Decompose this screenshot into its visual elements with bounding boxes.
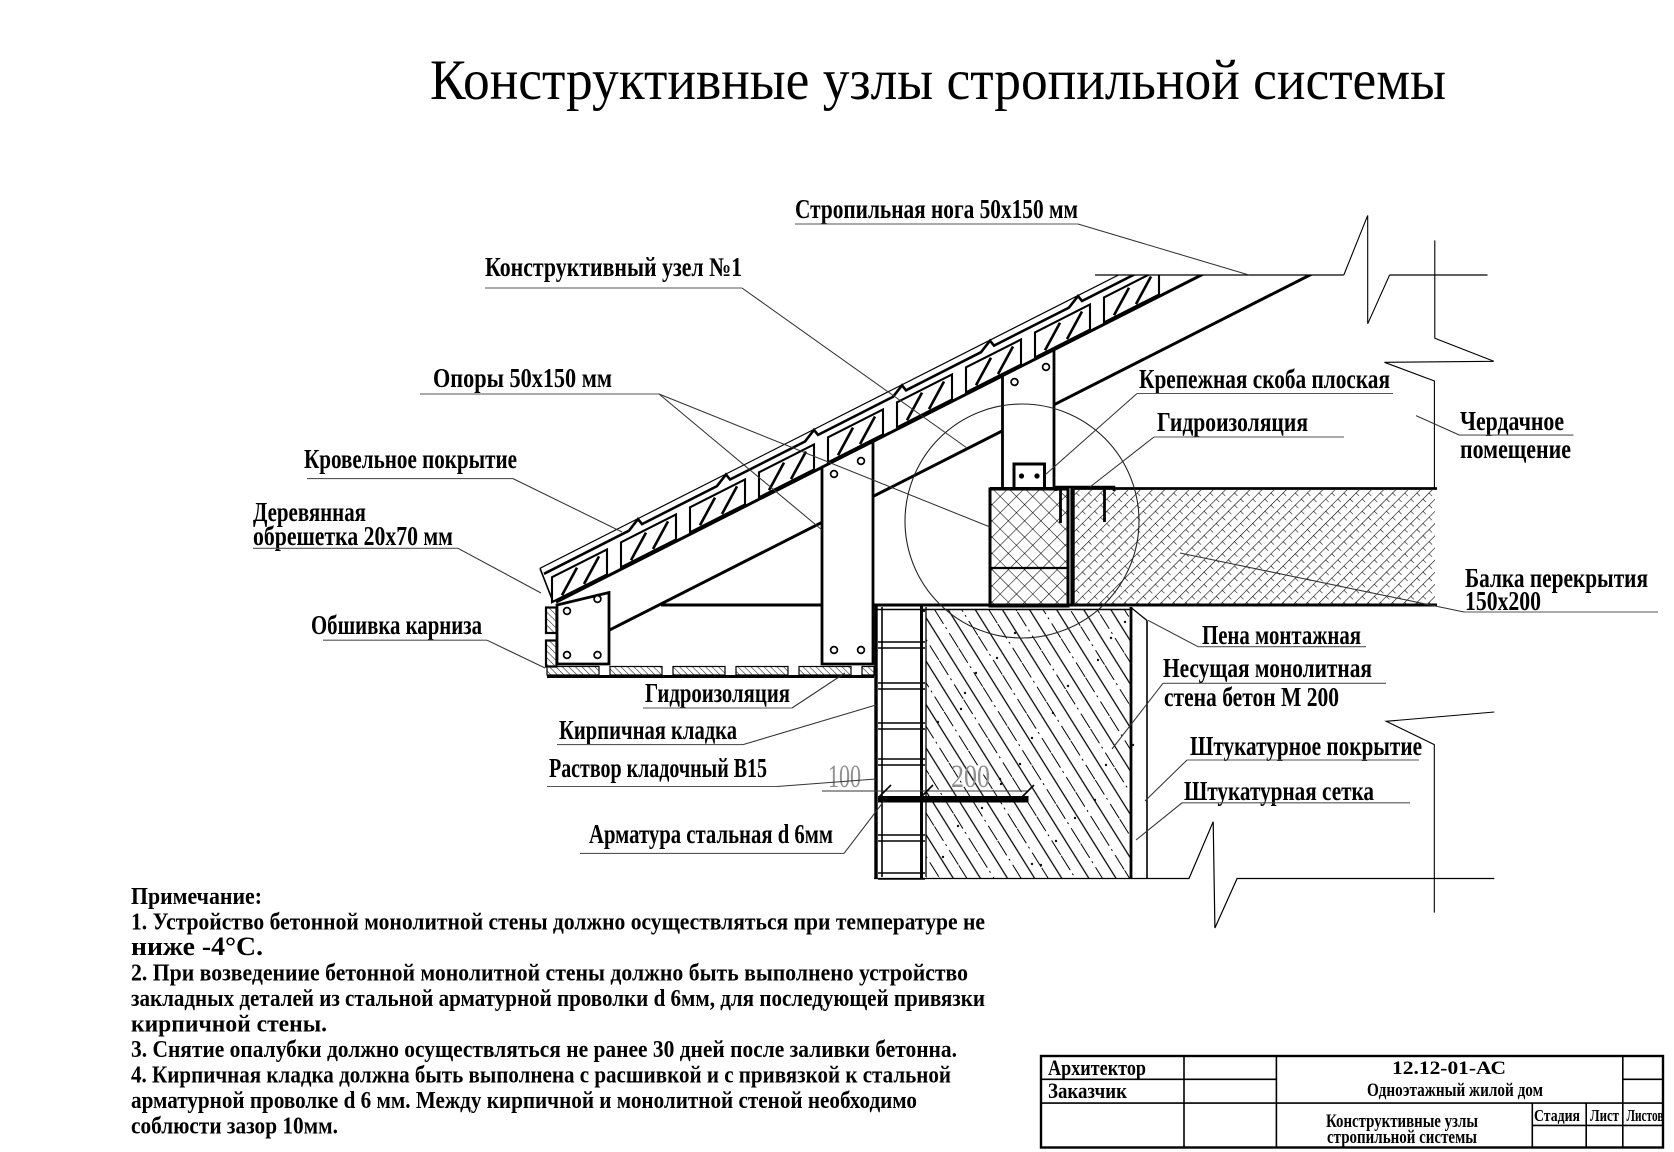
- svg-text:Обшивка карниза: Обшивка карниза: [311, 610, 482, 640]
- svg-text:Арматура стальная d 6мм: Арматура стальная d 6мм: [589, 819, 833, 849]
- svg-text:Листов: Листов: [1627, 1106, 1664, 1125]
- svg-text:100: 100: [828, 759, 861, 795]
- svg-text:Конструктивный узел №1: Конструктивный узел №1: [485, 252, 742, 282]
- svg-text:обрешетка 20х70 мм: обрешетка 20х70 мм: [253, 521, 453, 551]
- svg-text:Раствор кладочный В15: Раствор кладочный В15: [549, 753, 767, 783]
- svg-text:Несущая монолитная: Несущая монолитная: [1163, 653, 1372, 683]
- svg-text:Кирпичная кладка: Кирпичная кладка: [559, 715, 737, 745]
- svg-text:12.12-01-АС: 12.12-01-АС: [1392, 1058, 1506, 1079]
- svg-text:Гидроизоляция: Гидроизоляция: [645, 678, 790, 708]
- svg-text:стена бетон М 200: стена бетон М 200: [1164, 682, 1339, 712]
- svg-text:Архитектор: Архитектор: [1048, 1055, 1146, 1080]
- svg-text:Штукатурное покрытие: Штукатурное покрытие: [1190, 731, 1422, 761]
- svg-text:Гидроизоляция: Гидроизоляция: [1157, 407, 1308, 437]
- svg-text:Чердачное: Чердачное: [1460, 406, 1564, 436]
- svg-text:Кровельное покрытие: Кровельное покрытие: [304, 444, 517, 474]
- svg-text:Крепежная скоба плоская: Крепежная скоба плоская: [1139, 364, 1390, 394]
- svg-text:200: 200: [951, 759, 990, 795]
- svg-text:4. Кирпичная кладка должна быт: 4. Кирпичная кладка должна быть выполнен…: [131, 1063, 951, 1089]
- svg-text:соблюсти зазор 10мм.: соблюсти зазор 10мм.: [131, 1114, 338, 1140]
- svg-text:2. При возведениие бетонной мо: 2. При возведениие бетонной монолитной с…: [131, 961, 968, 987]
- svg-text:помещение: помещение: [1460, 434, 1571, 464]
- svg-text:Заказчик: Заказчик: [1048, 1078, 1127, 1103]
- svg-text:Конструктивные узлы стропильно: Конструктивные узлы стропильной системы: [430, 49, 1446, 112]
- svg-text:Стадия: Стадия: [1534, 1106, 1580, 1125]
- svg-text:Пена монтажная: Пена монтажная: [1202, 620, 1361, 650]
- svg-text:Стропильная нога 50х150 мм: Стропильная нога 50х150 мм: [795, 194, 1078, 224]
- svg-text:стропильной системы: стропильной системы: [1327, 1127, 1477, 1148]
- svg-text:Примечание:: Примечание:: [131, 884, 262, 910]
- svg-text:арматурной проволке d 6 мм. Ме: арматурной проволке d 6 мм. Между кирпич…: [131, 1088, 917, 1114]
- svg-text:3. Снятие опалубки должно осущ: 3. Снятие опалубки должно осуществляться…: [131, 1037, 957, 1063]
- svg-text:Лист: Лист: [1590, 1106, 1619, 1125]
- svg-text:ниже -4°С.: ниже -4°С.: [131, 932, 263, 961]
- svg-text:Опоры 50х150 мм: Опоры 50х150 мм: [433, 363, 612, 393]
- svg-text:Одноэтажный жилой дом: Одноэтажный жилой дом: [1367, 1080, 1543, 1101]
- svg-text:закладных деталей из стальной: закладных деталей из стальной арматурной…: [131, 986, 985, 1012]
- svg-text:Штукатурная сетка: Штукатурная сетка: [1184, 776, 1374, 806]
- svg-text:кирпичной стены.: кирпичной стены.: [131, 1012, 327, 1038]
